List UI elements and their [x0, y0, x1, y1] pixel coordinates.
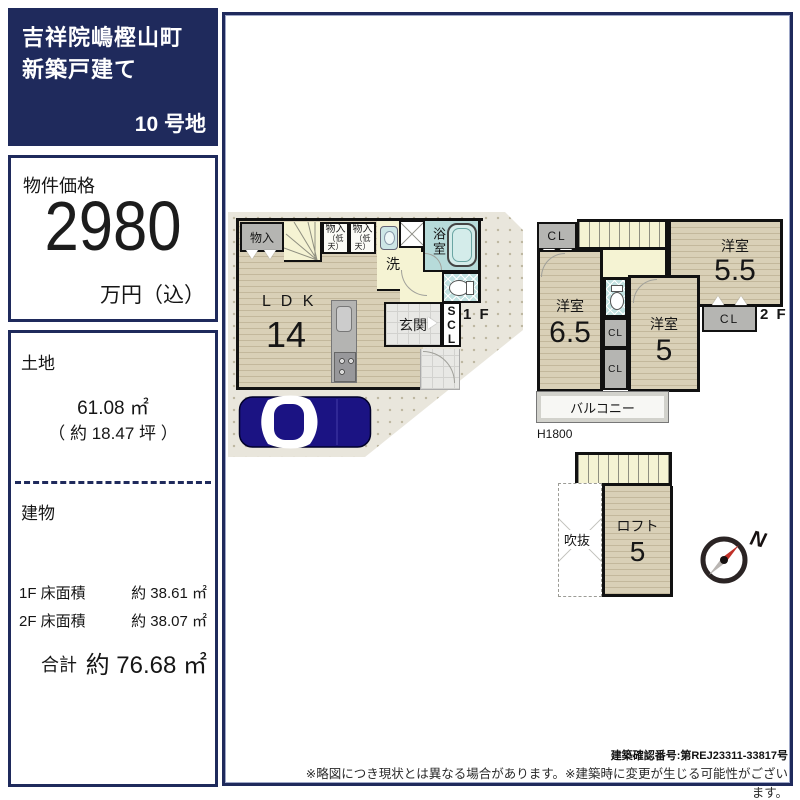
price-box: 物件価格 2980 万円（込） [8, 155, 218, 322]
building-heading: 建物 [21, 499, 55, 524]
bathtub-icon [447, 223, 477, 267]
floor1-tag: 1 F [463, 306, 491, 323]
closet-label: CL [608, 328, 623, 339]
closet-1f-label: 物入 [250, 229, 274, 246]
loft-size: 5 [602, 536, 673, 568]
land-area: 61.08 ㎡ [11, 393, 215, 420]
room-55-size: 5.5 [690, 254, 780, 288]
shoe-closet-label: SCL [445, 304, 459, 346]
shoe-closet: SCL [442, 302, 461, 347]
stairs-icon [284, 222, 320, 260]
void-area: 吹抜 [558, 483, 602, 597]
room-toilet-1f [442, 272, 481, 303]
floor1-area-value: 約 38.61 ㎡ [131, 582, 207, 603]
room-5-label: 洋室 [628, 314, 700, 334]
balcony-height-note: H1800 [537, 427, 572, 441]
toilet-icon [610, 292, 624, 310]
land-area-tsubo: （ 約 18.47 坪 ） [11, 419, 215, 444]
washbasin-icon [380, 226, 398, 250]
land-building-box: 土地 61.08 ㎡ （ 約 18.47 坪 ） 建物 1F 床面積 約 38.… [8, 330, 218, 787]
entrance-label: 玄関 [399, 315, 427, 335]
bathtub-inner [452, 228, 472, 262]
confirmation-number: 建築確認番号:第REJ23311-33817号 [400, 747, 788, 763]
room-5-size: 5 [628, 334, 700, 368]
closet-2f-lower: CL [603, 348, 628, 390]
total-area-label: 合計 [41, 651, 77, 677]
land-heading: 土地 [21, 349, 55, 374]
washbasin-bowl [384, 231, 395, 245]
closet-label: CL [608, 364, 623, 375]
lot-number: 10 号地 [135, 108, 206, 138]
closet-low-1f-a: 物入 （低天） [322, 222, 349, 254]
stairs-loft [575, 452, 672, 486]
title-box: 吉祥院嶋樫山町 新築戸建て 10 号地 [8, 8, 218, 146]
stairs-2f-landing [603, 250, 668, 278]
floor2-tag: 2 F [760, 306, 788, 323]
ldk-label: L D K [262, 293, 316, 311]
balcony: バルコニー [537, 392, 668, 422]
closet-low-sublabel: （低天） [351, 235, 374, 251]
closet-label: CL [547, 229, 566, 243]
kitchen-counter [331, 300, 357, 383]
divider-dashed [15, 481, 211, 484]
floor2-area-value: 約 38.07 ㎡ [131, 610, 207, 631]
property-title-line1: 吉祥院嶋樫山町 [22, 20, 183, 52]
room-65-label: 洋室 [537, 296, 603, 316]
toilet-tank [466, 281, 474, 295]
toilet-tank [611, 285, 623, 292]
room-65-size: 6.5 [537, 316, 603, 350]
door-mark [428, 317, 437, 329]
room-55-label: 洋室 [690, 236, 780, 256]
closet-2f-topleft: CL [537, 222, 577, 250]
closet-2f-right: CL [702, 305, 757, 332]
floor1-area-label: 1F 床面積 [19, 582, 86, 603]
stairs-1f [284, 222, 322, 262]
entrance-porch [420, 349, 460, 390]
car-icon [238, 394, 372, 450]
ldk-size-label: 14 [266, 314, 306, 356]
closet-1f: 物入 [240, 222, 284, 252]
door-arc [423, 351, 455, 383]
disclaimer-note: ※略図につき現状とは異なる場合があります。※建築時に変更が生じる可能性がございま… [300, 763, 788, 800]
closet-low-sublabel: （低天） [324, 235, 347, 251]
wall [236, 221, 239, 390]
price-amount: 2980 [23, 186, 203, 266]
total-area-value: 約 76.68 ㎡ [86, 645, 207, 680]
floor2-area-label: 2F 床面積 [19, 610, 86, 631]
door-mark [264, 250, 276, 259]
kitchen-sink-icon [336, 306, 352, 332]
property-title-line2: 新築戸建て [22, 52, 137, 84]
room-toilet-2f [603, 277, 628, 318]
flyer-page: 吉祥院嶋樫山町 新築戸建て 10 号地 物件価格 2980 万円（込） 土地 6… [0, 0, 800, 800]
wall [236, 387, 423, 390]
stairs-2f [577, 219, 668, 250]
door-mark [735, 296, 747, 305]
closet-low-1f-b: 物入 （低天） [349, 222, 376, 254]
bath-label: 浴室 [429, 227, 448, 257]
loft-label: ロフト [602, 516, 673, 536]
compass-north-label: N [748, 527, 769, 553]
door-mark [712, 296, 724, 305]
washer-pan-icon [399, 220, 425, 248]
void-label: 吹抜 [563, 530, 591, 549]
closet-2f-mid: CL [603, 318, 628, 348]
compass-icon: N [694, 524, 774, 590]
door-mark [246, 250, 258, 259]
price-unit: 万円（込） [100, 279, 205, 309]
closet-label: CL [720, 312, 739, 326]
stove-icon [334, 352, 356, 382]
balcony-label: バルコニー [570, 398, 635, 417]
